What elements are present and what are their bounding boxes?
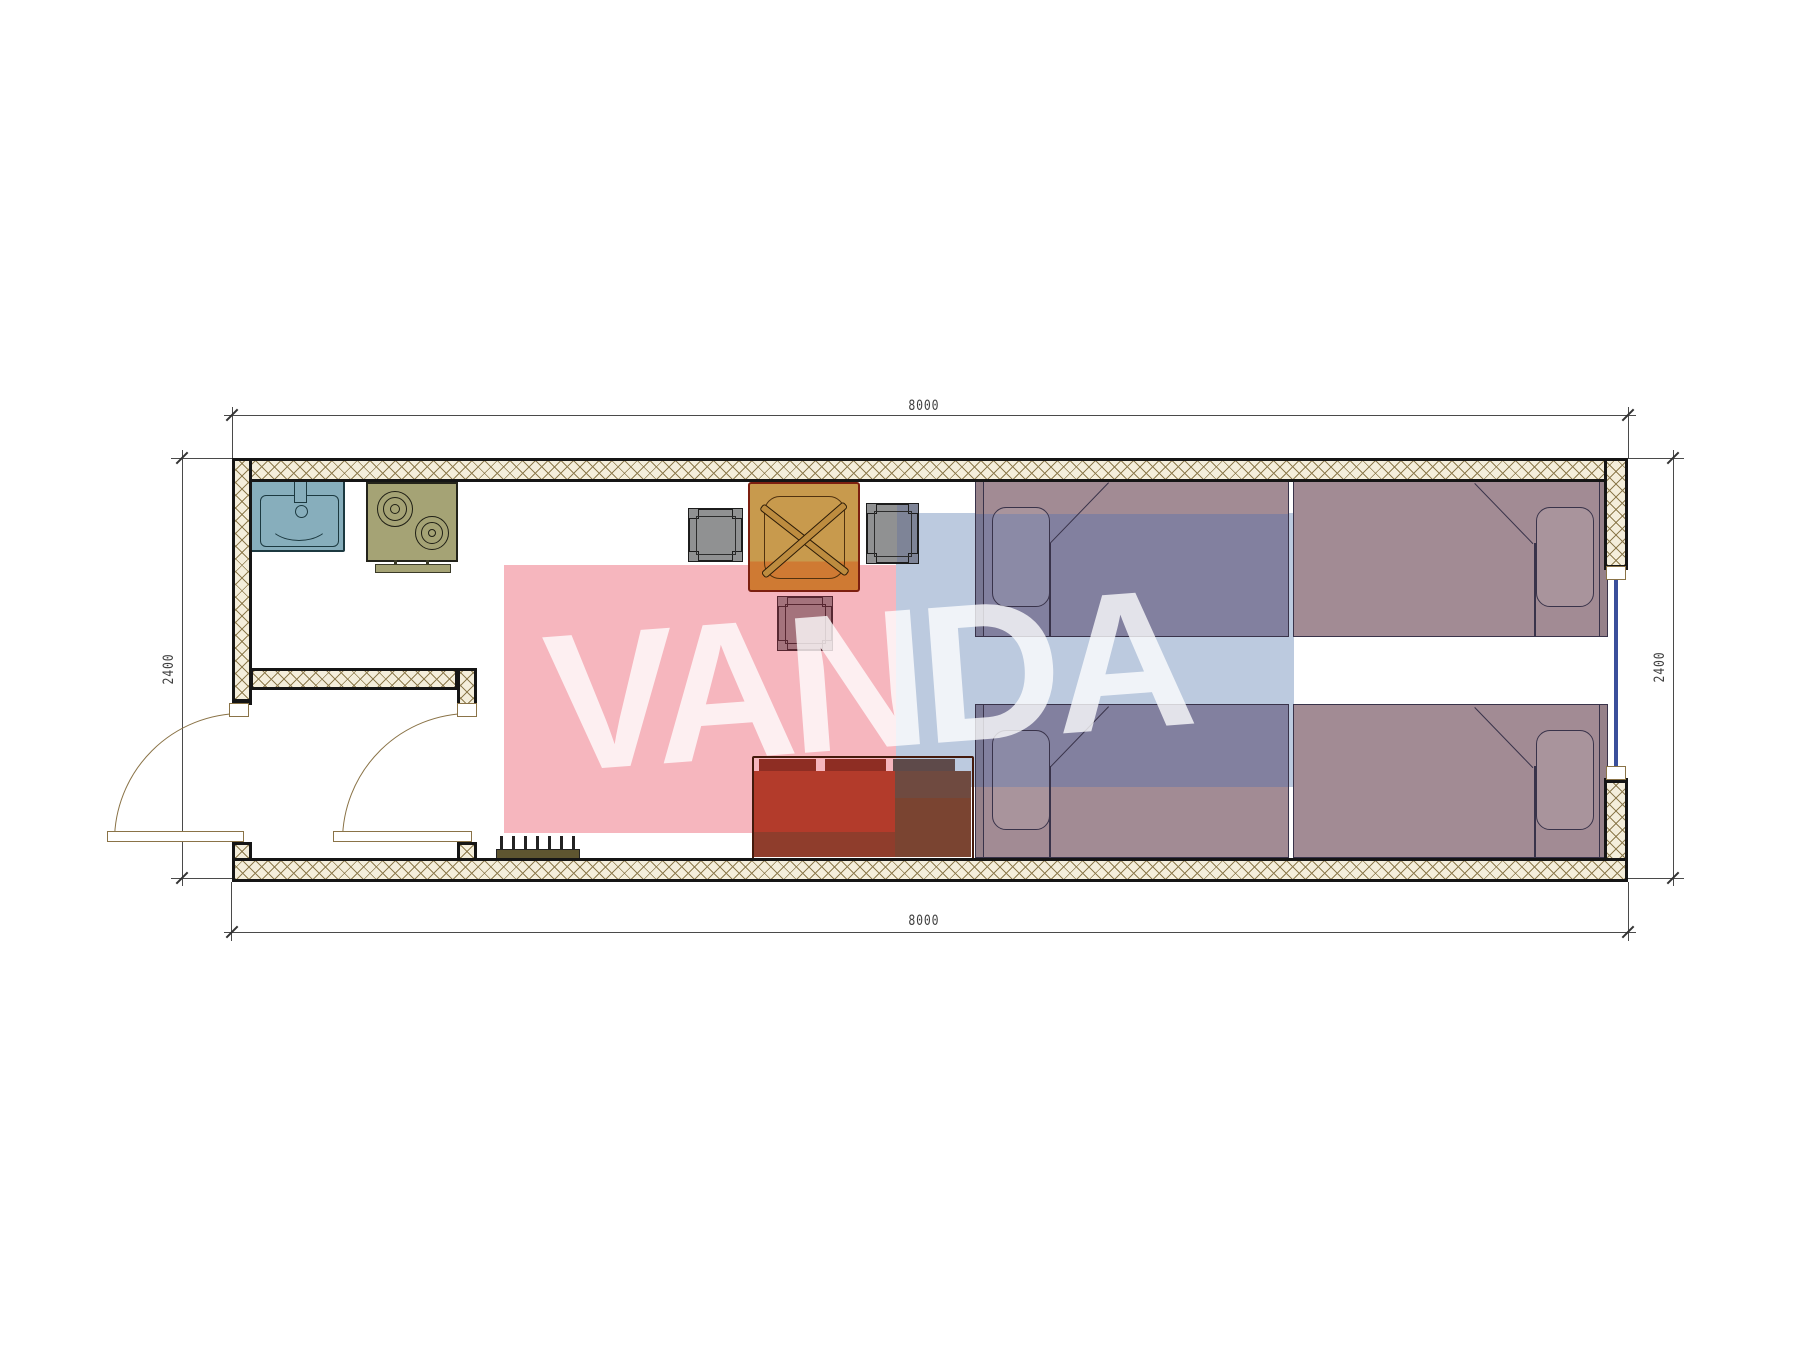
window-jamb: [1606, 566, 1626, 580]
window-glass-line: [1614, 580, 1618, 766]
bed-blanket-line: [1534, 766, 1536, 858]
stove-base-leg: [394, 560, 397, 565]
watermark-text: VANDA: [539, 559, 1194, 803]
bottom-dimension-line: [224, 932, 1636, 933]
sink: [250, 477, 345, 552]
stove-burner-icon: [390, 504, 400, 514]
stove-base-leg: [426, 560, 429, 565]
chair-right: [866, 503, 919, 564]
sofa-body: [754, 832, 895, 857]
wall-right-upper: [1604, 458, 1628, 570]
shoe-rack-peg: [572, 836, 575, 849]
chair-seat-outline: [874, 511, 912, 557]
wall-bottom-end-block: [232, 842, 252, 861]
right-dimension-line: [1673, 450, 1674, 886]
wall-bottom-pillar: [457, 842, 477, 861]
shoe-rack-peg: [536, 836, 539, 849]
bed-blanket-line: [1049, 766, 1051, 858]
shoe-rack-peg: [512, 836, 515, 849]
wall-left: [232, 458, 252, 705]
door-frame-block: [457, 703, 477, 717]
shoe-rack-peg: [524, 836, 527, 849]
stove-base: [375, 564, 451, 573]
wall-top: [232, 458, 1628, 482]
extension-line: [1628, 458, 1684, 459]
bed-top-right: [1293, 480, 1608, 637]
dimension-label-left: 2400: [161, 654, 177, 685]
dimension-label-bottom: 8000: [908, 913, 939, 929]
bed-blanket-fold: [1474, 707, 1533, 768]
shoe-rack-peg: [500, 836, 503, 849]
dimension-label-right: 2400: [1652, 652, 1668, 683]
bed-blanket-line: [1534, 543, 1536, 636]
dimension-label-top: 8000: [908, 398, 939, 414]
door-frame-block: [229, 703, 249, 717]
bed-pillow: [1536, 730, 1594, 830]
bed-pillow: [1536, 507, 1594, 607]
chair-left: [688, 508, 743, 562]
sink-faucet-knob: [295, 505, 308, 518]
shoe-rack-peg: [560, 836, 563, 849]
stove-burner-icon: [428, 529, 436, 537]
sink-faucet-icon: [294, 480, 307, 503]
entry-door-leaf: [107, 831, 244, 842]
shoe-rack-peg: [548, 836, 551, 849]
bed-blanket-fold: [1050, 482, 1109, 543]
bed-bottom-right: [1293, 704, 1608, 858]
floor-plan-canvas: 8000 8000 2400 2400: [0, 0, 1800, 1350]
wall-bottom: [232, 858, 1628, 882]
extension-line: [1628, 878, 1684, 879]
bed-blanket-fold: [1474, 483, 1533, 544]
interior-door-leaf: [333, 831, 472, 842]
sofa-body: [895, 798, 971, 857]
window-jamb: [1606, 766, 1626, 780]
stove: [366, 482, 458, 562]
top-dimension-line: [224, 415, 1636, 416]
wall-vestibule-partition: [250, 668, 458, 690]
chair-seat-outline: [696, 516, 736, 555]
